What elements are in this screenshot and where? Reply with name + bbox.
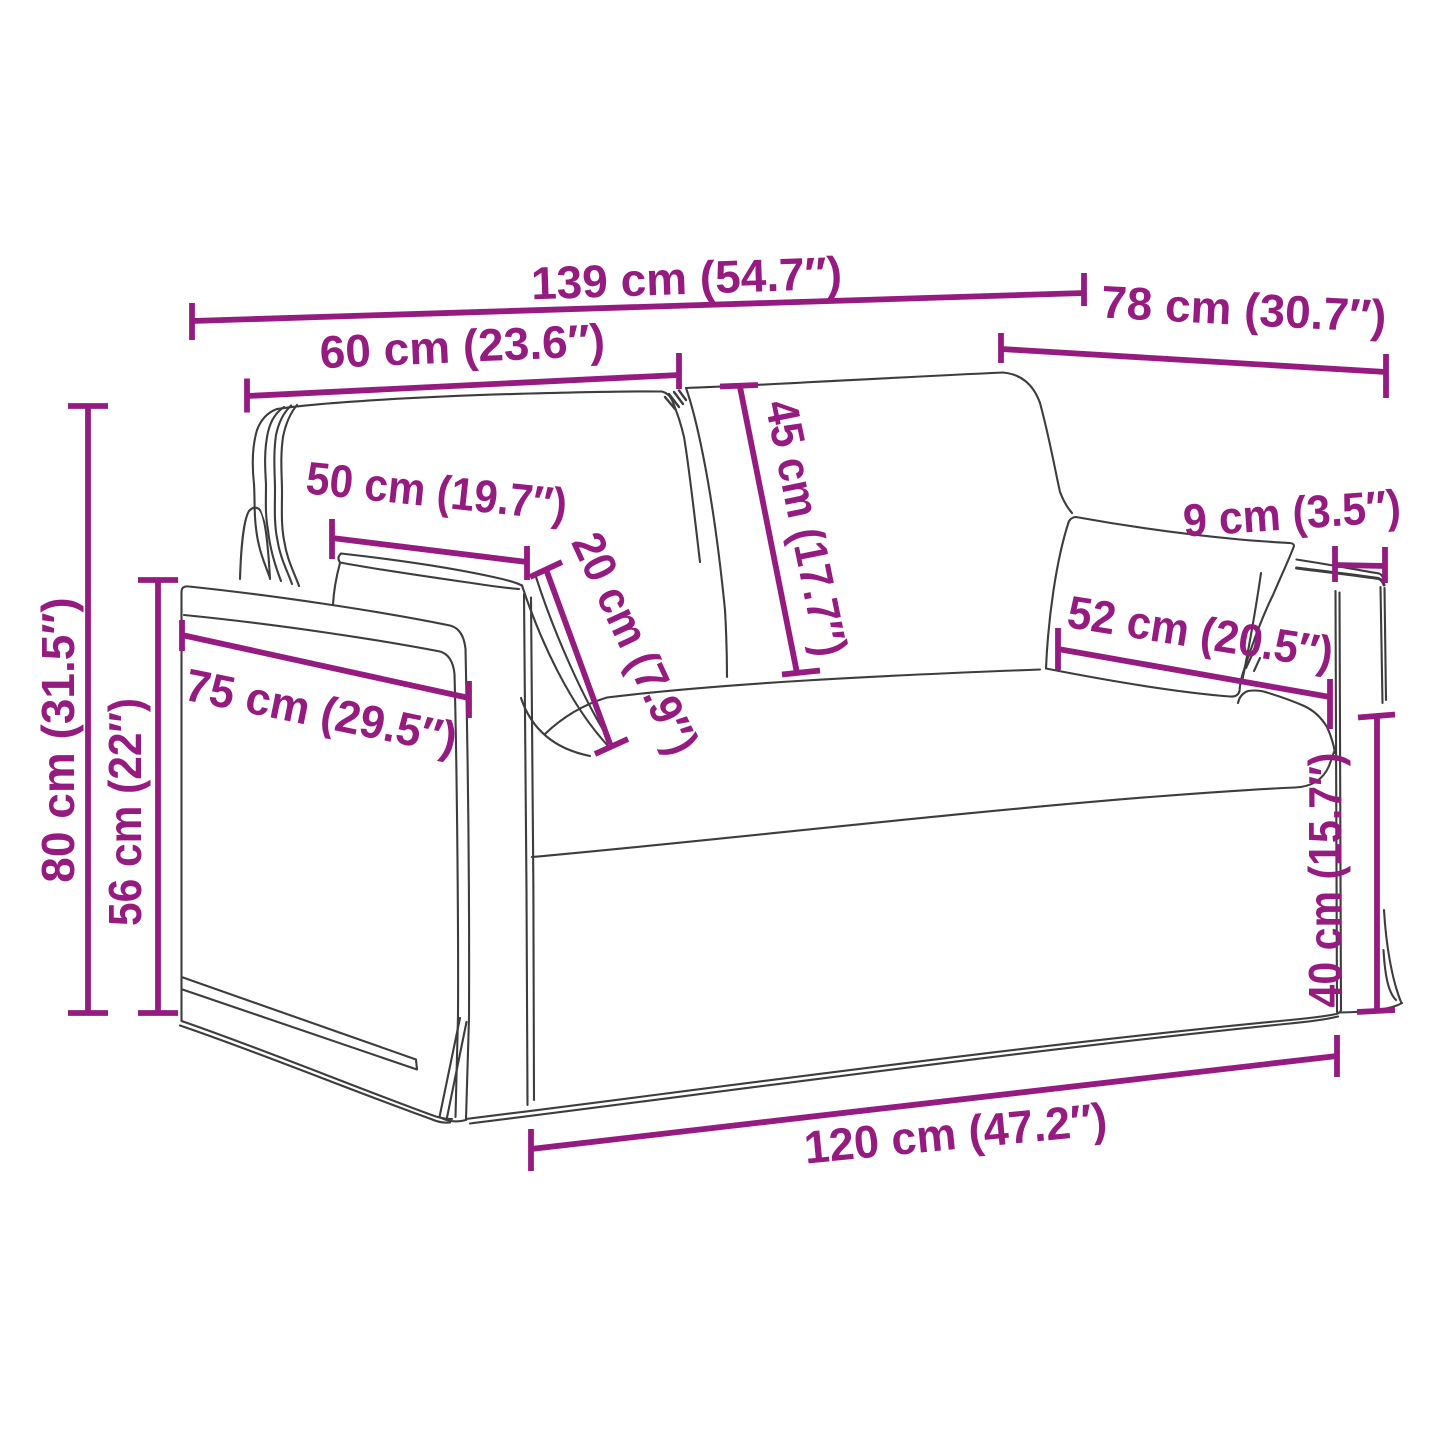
svg-text:139 cm (54.7″): 139 cm (54.7″) <box>530 247 843 310</box>
svg-text:40 cm (15.7″): 40 cm (15.7″) <box>1299 753 1351 1008</box>
svg-text:56 cm (22″): 56 cm (22″) <box>99 698 151 926</box>
svg-text:80 cm (31.5″): 80 cm (31.5″) <box>32 597 84 882</box>
